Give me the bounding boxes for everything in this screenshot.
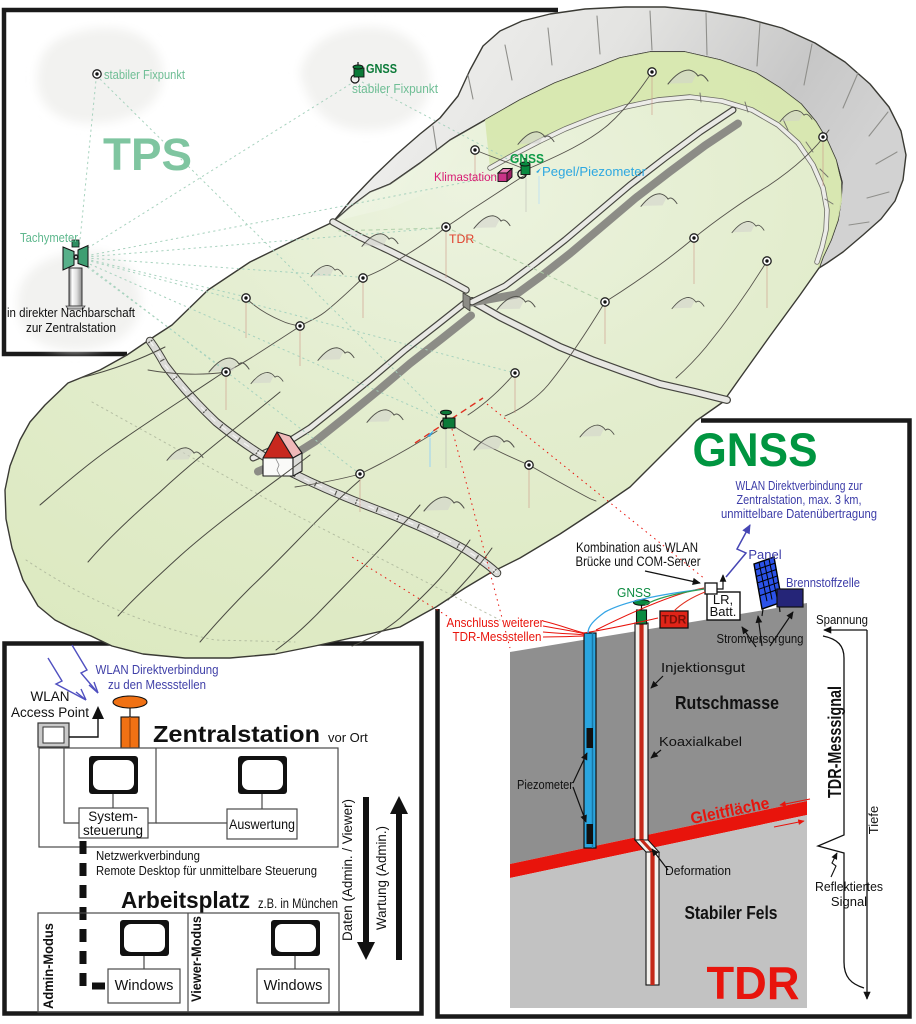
svg-text:Anschluss weiterer: Anschluss weiterer [447,615,545,630]
svg-text:vor Ort: vor Ort [328,730,368,745]
svg-text:TDR: TDR [662,613,687,627]
svg-text:Auswertung: Auswertung [229,817,295,832]
svg-text:Koaxialkabel: Koaxialkabel [659,734,742,749]
svg-text:zur Zentralstation: zur Zentralstation [26,321,116,335]
svg-text:Wartung (Admin.): Wartung (Admin.) [374,826,389,930]
svg-text:Brennstoffzelle: Brennstoffzelle [786,575,860,590]
svg-text:Arbeitsplatz: Arbeitsplatz [121,887,250,913]
svg-text:GNSS: GNSS [693,423,818,476]
svg-text:Stabiler Fels: Stabiler Fels [685,902,778,923]
svg-text:System-: System- [88,809,138,824]
svg-text:TDR: TDR [449,232,474,246]
svg-text:Piezometer: Piezometer [517,777,574,792]
svg-text:WLAN Direktverbindung: WLAN Direktverbindung [96,662,219,677]
svg-text:Windows: Windows [115,978,174,994]
svg-text:steuerung: steuerung [83,823,143,838]
svg-text:Batt.: Batt. [710,604,737,619]
svg-text:Spannung: Spannung [816,612,868,627]
svg-text:Admin-Modus: Admin-Modus [41,923,56,1009]
svg-text:z.B. in München: z.B. in München [258,896,338,911]
svg-text:in direkter Nachbarschaft: in direkter Nachbarschaft [7,306,135,320]
svg-text:Injektionsgut: Injektionsgut [661,660,745,675]
svg-text:Signal: Signal [831,894,867,909]
svg-text:Panel: Panel [748,547,781,562]
svg-text:GNSS: GNSS [366,62,397,76]
svg-text:GNSS: GNSS [510,151,544,166]
svg-text:Brücke und COM-Server: Brücke und COM-Server [576,554,701,569]
svg-text:WLAN: WLAN [30,689,69,704]
svg-text:Zentralstation, max. 3 km,: Zentralstation, max. 3 km, [737,492,862,507]
svg-text:Deformation: Deformation [665,863,731,878]
svg-text:TDR-Messsignal: TDR-Messsignal [824,686,845,798]
svg-text:Pegel/Piezometer: Pegel/Piezometer [542,165,646,179]
svg-text:Kombination aus WLAN: Kombination aus WLAN [576,540,698,555]
svg-text:Tachymeter: Tachymeter [20,231,78,245]
svg-text:Remote Desktop für unmittelbar: Remote Desktop für unmittelbare Steuerun… [96,863,317,878]
svg-text:stabiler Fixpunkt: stabiler Fixpunkt [104,68,185,82]
svg-text:Zentralstation: Zentralstation [153,721,320,747]
svg-text:Netzwerkverbindung: Netzwerkverbindung [96,848,200,863]
svg-text:Viewer-Modus: Viewer-Modus [189,916,204,1002]
svg-text:Reflektiertes: Reflektiertes [815,879,883,894]
svg-text:Rutschmasse: Rutschmasse [675,692,779,713]
svg-text:zu den Messstellen: zu den Messstellen [108,677,206,692]
svg-text:WLAN Direktverbindung zur: WLAN Direktverbindung zur [736,478,864,493]
svg-text:Tiefe: Tiefe [866,806,881,834]
svg-text:Windows: Windows [264,978,323,994]
svg-text:Access Point: Access Point [11,705,89,720]
svg-text:Daten (Admin. / Viewer): Daten (Admin. / Viewer) [340,799,355,941]
svg-text:stabiler Fixpunkt: stabiler Fixpunkt [352,82,438,96]
svg-text:TPS: TPS [103,129,192,180]
svg-text:Klimastation: Klimastation [434,170,497,184]
svg-text:unmittelbare Datenübertragung: unmittelbare Datenübertragung [721,506,877,521]
svg-text:TDR: TDR [707,957,800,1009]
svg-text:TDR-Messstellen: TDR-Messstellen [453,629,542,644]
